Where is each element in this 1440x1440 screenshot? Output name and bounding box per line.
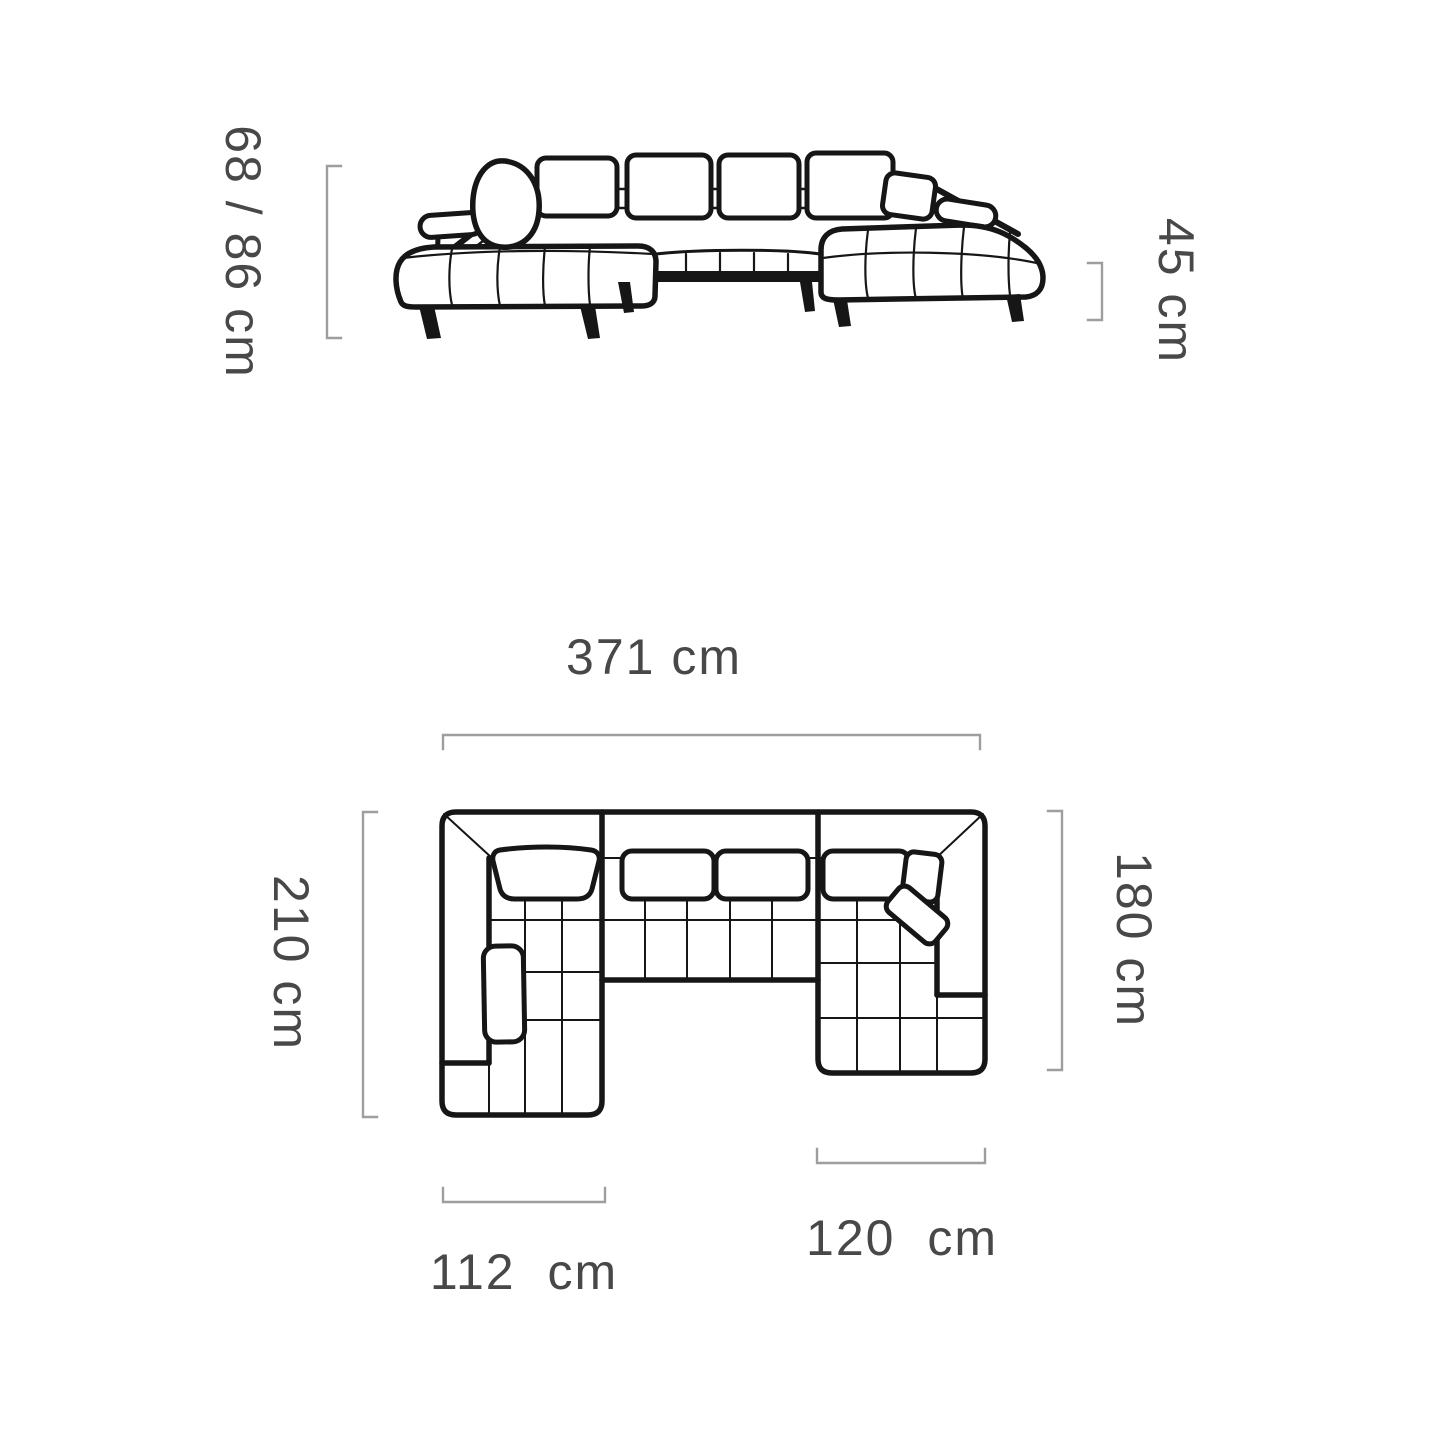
backrest-corner-diagonal [936, 814, 983, 858]
plan-back-cushion [716, 851, 808, 899]
back-cushion [537, 158, 617, 216]
label-left-chaise-width: 112 cm [430, 1243, 618, 1301]
label-total-width: 371 cm [566, 628, 742, 686]
label-right-depth: 180 cm [1105, 852, 1163, 1028]
back-cushion [719, 155, 799, 218]
sofa-leg [833, 299, 851, 327]
sofa-front-elevation [396, 153, 1043, 339]
sofa-top-plan [442, 812, 985, 1115]
right-accent-pillow [881, 172, 936, 221]
middle-frame-bar [650, 271, 826, 282]
plan-side-cushion [483, 946, 525, 1043]
plan-back-cushion [493, 847, 599, 899]
sofa-leg [419, 306, 441, 339]
bracket-total-width [443, 735, 980, 749]
sofa-leg [800, 282, 815, 312]
bracket-seat-height [1088, 263, 1102, 320]
plan-back-cushion [622, 851, 714, 899]
sofa-dimension-diagram: 68 / 86 cm 45 cm 371 cm 210 cm 180 cm 11… [0, 0, 1440, 1440]
left-round-pillow [473, 161, 539, 247]
sofa-leg [580, 306, 600, 339]
label-seat-height: 45 cm [1147, 218, 1205, 364]
label-back-height: 68 / 86 cm [214, 125, 272, 378]
backrest-corner-diagonal [444, 814, 492, 858]
label-left-depth: 210 cm [262, 875, 320, 1051]
label-right-chaise-width: 120 cm [806, 1209, 998, 1267]
bracket-right-depth [1048, 811, 1062, 1070]
plan-diagonal-pillow [883, 883, 951, 947]
bracket-back-height [327, 166, 341, 338]
back-cushion [627, 155, 711, 218]
bracket-left-depth [363, 812, 377, 1117]
back-cushion [807, 153, 893, 218]
bracket-right-chaise-width [817, 1149, 985, 1163]
bracket-left-chaise-width [443, 1188, 605, 1202]
